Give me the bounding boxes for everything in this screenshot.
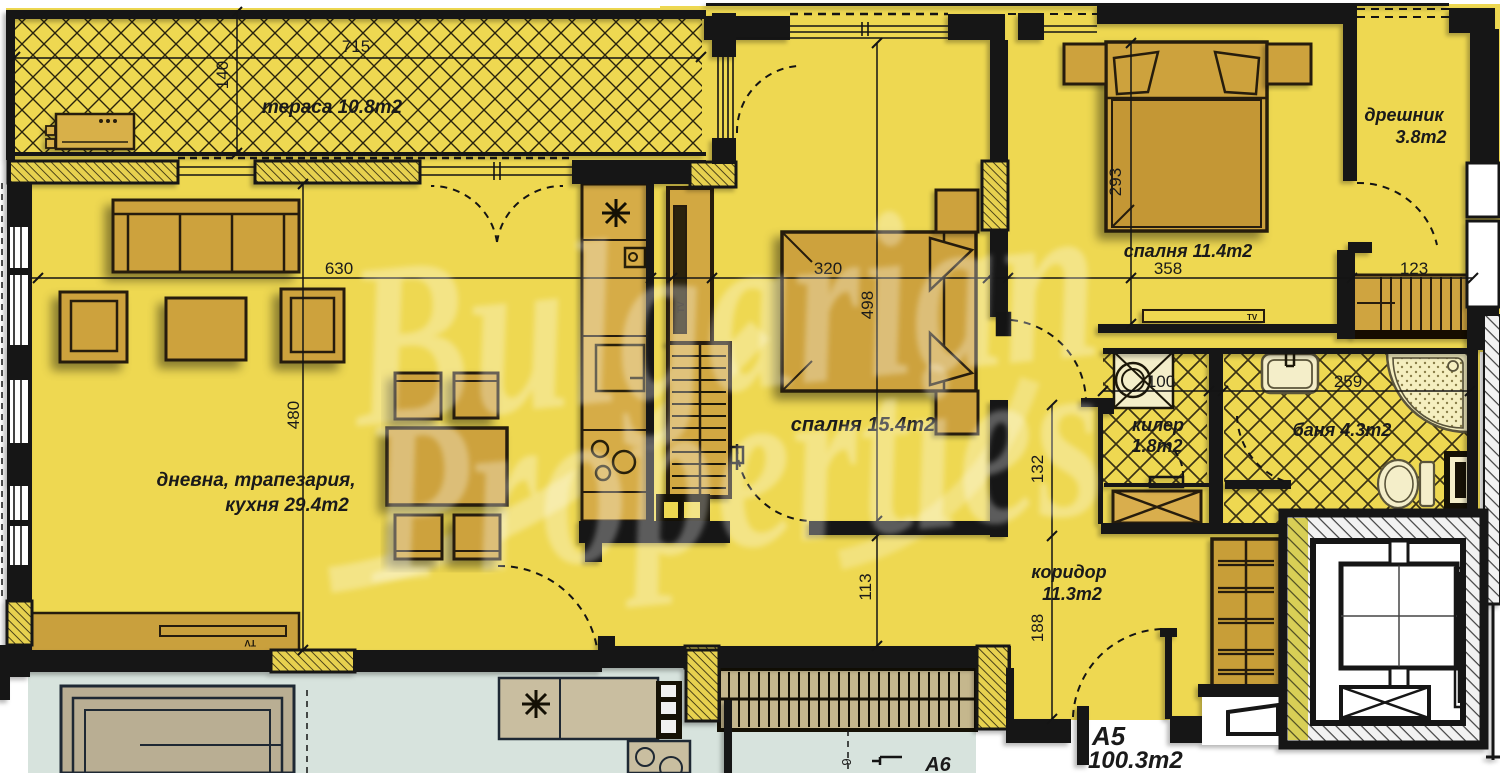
svg-text:TV: TV [244, 638, 256, 648]
svg-text:9: 9 [839, 758, 854, 765]
svg-text:100.3m2: 100.3m2 [1088, 747, 1183, 773]
svg-text:123: 123 [1400, 259, 1428, 278]
svg-text:кухня 29.4m2: кухня 29.4m2 [225, 495, 349, 516]
svg-text:TV: TV [1247, 313, 1258, 322]
svg-text:100: 100 [1147, 372, 1175, 391]
svg-text:3.8m2: 3.8m2 [1395, 127, 1446, 147]
svg-text:дневна, трапезария,: дневна, трапезария, [156, 470, 355, 491]
svg-text:188: 188 [1028, 614, 1047, 642]
svg-text:баня 4.3m2: баня 4.3m2 [1293, 420, 1392, 440]
svg-text:килер: килер [1132, 415, 1184, 435]
svg-text:тераса 10.8m2: тераса 10.8m2 [262, 97, 403, 118]
svg-text:358: 358 [1154, 259, 1182, 278]
svg-text:140: 140 [213, 61, 232, 89]
svg-text:293: 293 [1106, 168, 1125, 196]
svg-text:дрешник: дрешник [1364, 105, 1444, 125]
svg-text:715: 715 [342, 37, 370, 56]
svg-text:спалня 11.4m2: спалня 11.4m2 [1124, 241, 1253, 261]
svg-text:1.8m2: 1.8m2 [1131, 436, 1182, 456]
svg-text:259: 259 [1334, 372, 1362, 391]
svg-text:11.3m2: 11.3m2 [1042, 584, 1102, 604]
svg-text:480: 480 [284, 401, 303, 429]
svg-text:А6: А6 [924, 754, 951, 773]
